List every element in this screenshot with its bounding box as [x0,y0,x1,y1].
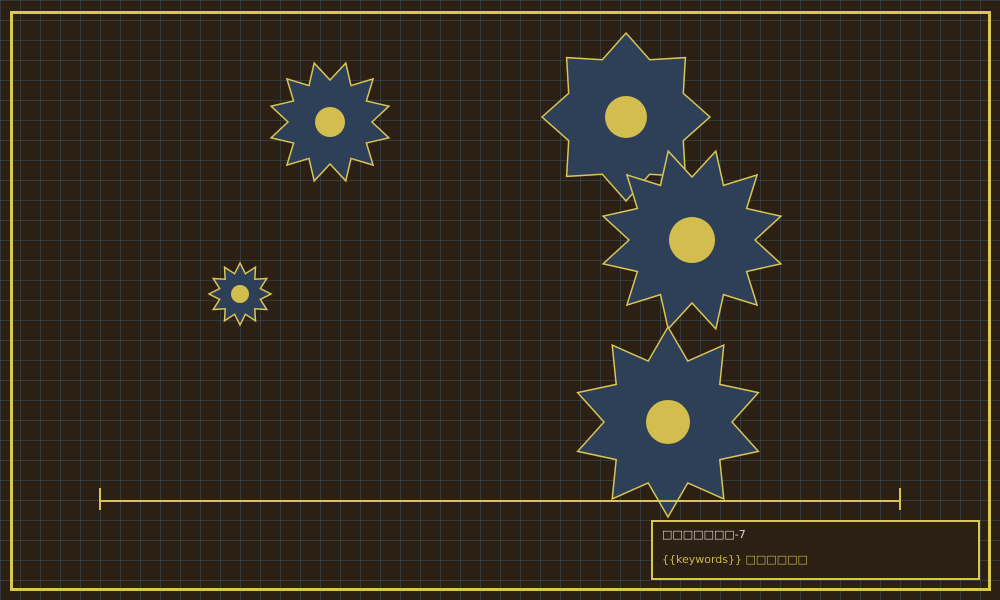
gear-small-left[interactable] [209,263,271,325]
gear-middle-right[interactable] [603,151,781,329]
gear-top-left-core [315,107,345,137]
gears-layer [0,0,1000,600]
info-subtitle: {{keywords}} □□□□□□ [662,553,969,567]
gear-top-right-core [605,96,647,138]
gear-top-left[interactable] [271,63,389,181]
info-box: □□□□□□□-7 {{keywords}} □□□□□□ [651,520,980,580]
gear-small-left-core [231,285,249,303]
game-canvas: □□□□□□□-7 {{keywords}} □□□□□□ [0,0,1000,600]
gear-bottom-right[interactable] [578,327,759,517]
gear-bottom-right-core [646,400,690,444]
gear-middle-right-core [669,217,715,263]
info-title: □□□□□□□-7 [662,528,969,542]
